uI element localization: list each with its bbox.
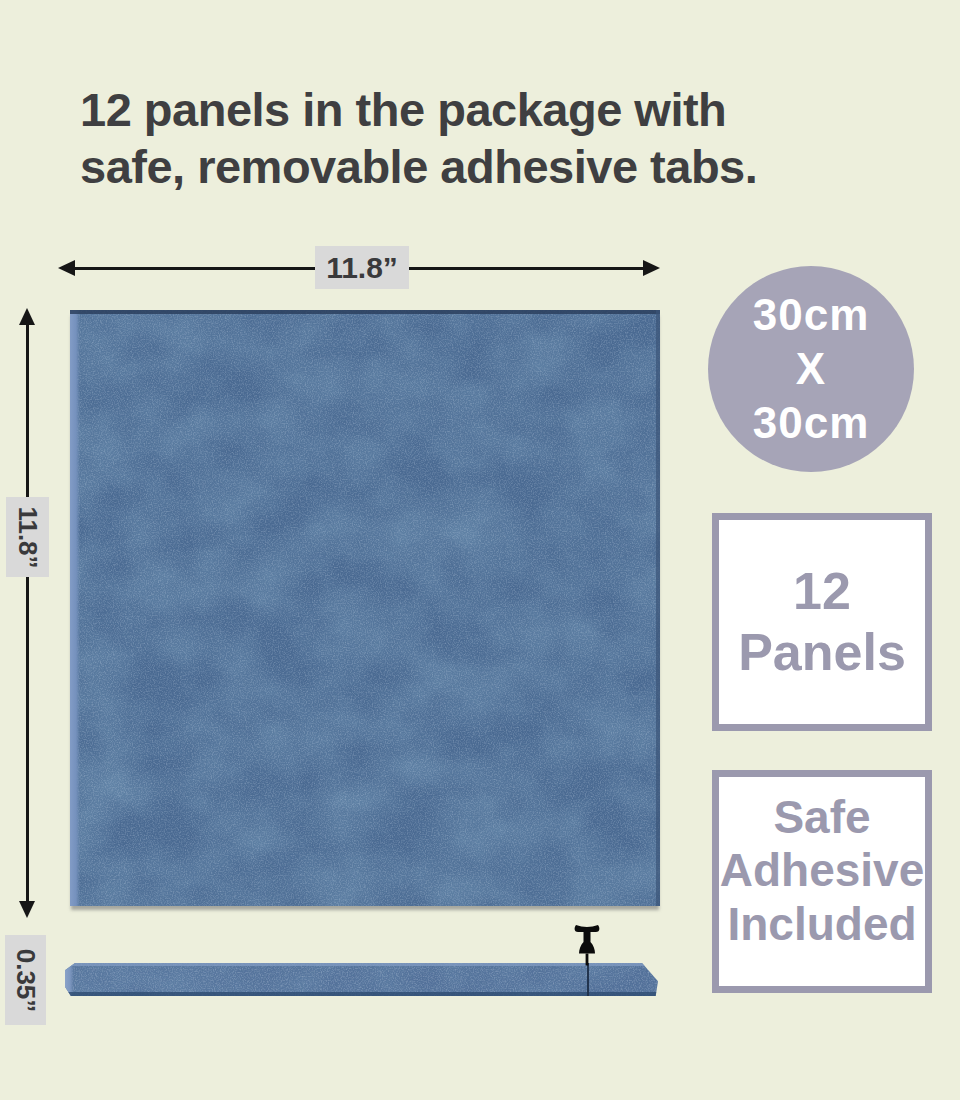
size-circle-badge: 30cm X 30cm: [708, 266, 914, 472]
adhesive-line-2: Adhesive: [720, 844, 925, 897]
panel-count-word: Panels: [738, 622, 906, 683]
thickness-value: 0.35”: [10, 948, 41, 1012]
size-circle-line-3: 30cm: [753, 396, 870, 450]
arrow-right-head-icon: [643, 260, 660, 276]
arrow-down-head-icon: [19, 901, 35, 918]
title-line-2: safe, removable adhesive tabs.: [80, 139, 900, 196]
adhesive-line-1: Safe: [773, 791, 870, 844]
height-value: 11.8”: [12, 506, 43, 568]
adhesive-badge: Safe Adhesive Included: [712, 770, 932, 993]
push-pin-glyph: [572, 925, 602, 969]
page-title: 12 panels in the package with safe, remo…: [80, 82, 900, 196]
height-arrow-line: [26, 318, 29, 908]
panel-count-badge: 12 Panels: [712, 513, 932, 731]
size-circle-line-1: 30cm: [753, 288, 870, 342]
side-view-bottom-shade: [65, 992, 658, 996]
width-value: 11.8”: [326, 251, 398, 285]
side-view-top-face: [65, 963, 658, 966]
arrow-left-head-icon: [58, 260, 75, 276]
panel-left-bevel: [70, 310, 80, 906]
height-dimension-label: 11.8”: [6, 497, 49, 577]
size-circle-line-2: X: [796, 342, 826, 396]
felt-texture: [70, 310, 660, 906]
title-line-1: 12 panels in the package with: [80, 82, 900, 139]
push-pin-icon: [572, 925, 602, 969]
arrow-up-head-icon: [19, 308, 35, 325]
adhesive-line-3: Included: [727, 898, 916, 951]
acoustic-panel-photo: [70, 310, 660, 906]
panel-side-view: [65, 963, 658, 996]
width-dimension-label: 11.8”: [315, 246, 409, 289]
panel-count-number: 12: [793, 561, 851, 622]
panel-top-edge: [70, 310, 660, 314]
product-infographic: 12 panels in the package with safe, remo…: [0, 0, 960, 1100]
height-dimension-arrow: [17, 308, 37, 918]
panel-right-edge: [656, 310, 660, 906]
thickness-dimension-label: 0.35”: [5, 935, 46, 1025]
